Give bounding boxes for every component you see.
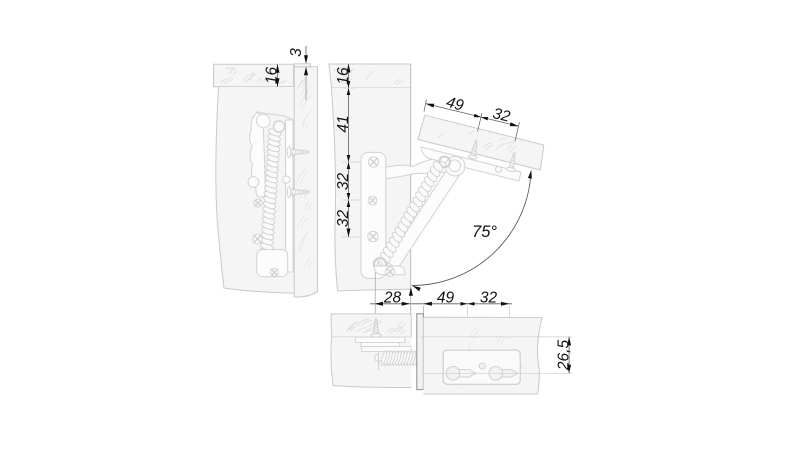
- svg-text:75°: 75°: [472, 223, 497, 241]
- svg-text:32: 32: [335, 173, 352, 191]
- svg-text:32: 32: [335, 210, 352, 228]
- svg-text:41: 41: [335, 115, 352, 132]
- svg-text:32: 32: [491, 105, 512, 126]
- svg-text:28: 28: [383, 289, 402, 306]
- svg-text:16: 16: [263, 67, 280, 85]
- svg-text:49: 49: [437, 289, 455, 306]
- svg-text:26,5: 26,5: [556, 340, 573, 372]
- svg-text:3: 3: [288, 48, 305, 57]
- svg-text:49: 49: [444, 94, 465, 115]
- svg-text:16: 16: [335, 67, 352, 85]
- svg-text:32: 32: [480, 289, 498, 306]
